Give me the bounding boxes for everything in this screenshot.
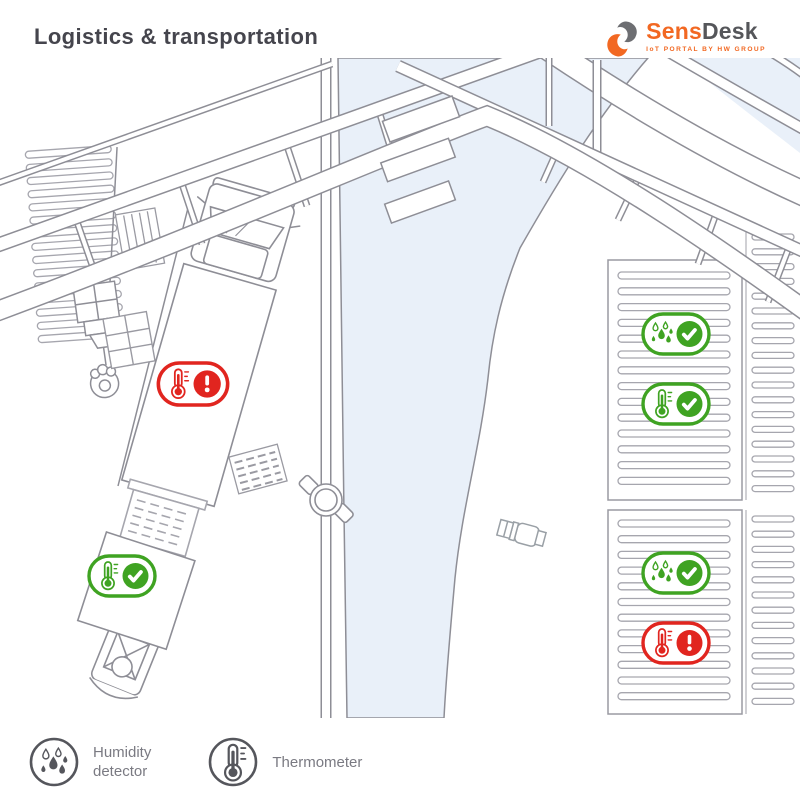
legend: Humidity detector Thermometer [28, 736, 362, 788]
humidity-detector-icon [28, 736, 80, 788]
grid-crate [103, 312, 155, 369]
illustration-canvas [0, 58, 800, 718]
logo-text: SensDesk IoT PORTAL BY HW GROUP [646, 20, 766, 53]
thermometer-icon [207, 736, 259, 788]
sensor-badge-rack-bottom-humidity [643, 553, 709, 593]
sensdesk-logo-icon [606, 20, 639, 58]
legend-label-humidity: Humidity detector [93, 743, 151, 781]
sensdesk-logo[interactable]: SensDesk IoT PORTAL BY HW GROUP [606, 20, 766, 58]
brand-name: SensDesk [646, 20, 766, 43]
sensor-badge-forklift-box-thermometer [89, 556, 155, 596]
sensor-badge-rack-top-thermometer [643, 384, 709, 424]
sensor-badge-rack-bottom-thermometer [643, 623, 709, 663]
logo-tagline: IoT PORTAL BY HW GROUP [646, 46, 766, 53]
legend-label-thermometer: Thermometer [272, 753, 362, 772]
header: Logistics & transportation SensDesk IoT … [0, 0, 800, 62]
mini-forklift-icon [496, 518, 547, 549]
sensor-badge-rack-top-humidity [643, 314, 709, 354]
brand-desk: Desk [702, 18, 758, 44]
page-title: Logistics & transportation [34, 20, 318, 50]
brand-sens: Sens [646, 18, 702, 44]
pallet-2 [229, 444, 287, 494]
legend-item-humidity: Humidity detector [28, 736, 151, 788]
legend-item-thermometer: Thermometer [207, 736, 362, 788]
sensor-badge-truck-thermometer [158, 363, 227, 405]
